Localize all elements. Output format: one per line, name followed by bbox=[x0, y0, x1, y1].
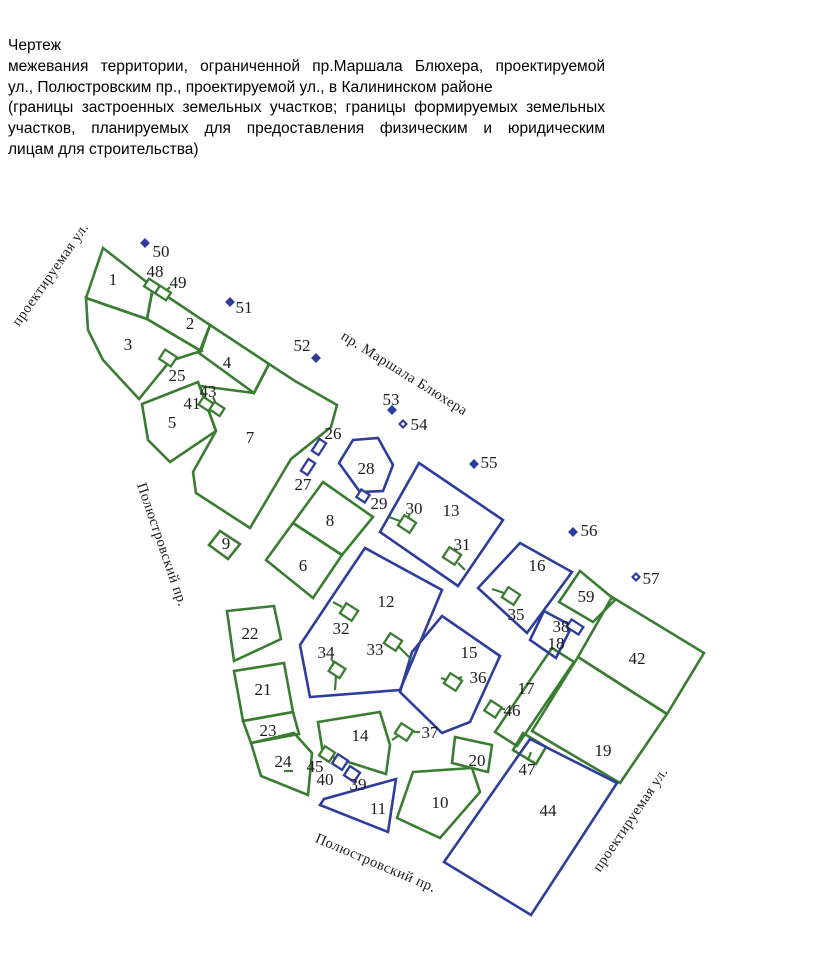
marker-43-label: 43 bbox=[200, 382, 217, 401]
parcel-44-label: 44 bbox=[540, 801, 558, 820]
marker-48-label: 48 bbox=[147, 262, 164, 281]
parcel-20-label: 20 bbox=[469, 751, 486, 770]
leader-line-4 bbox=[335, 676, 336, 690]
marker-25-label: 25 bbox=[169, 366, 186, 385]
parcel-47-label: 47 bbox=[519, 760, 537, 779]
parcel-9-label: 9 bbox=[222, 534, 231, 553]
marker-34-label: 34 bbox=[318, 643, 336, 662]
parcel-12-label: 12 bbox=[378, 592, 395, 611]
survey-point-52-label: 52 bbox=[294, 336, 311, 355]
leader-line-15 bbox=[528, 752, 531, 760]
survey-point-56 bbox=[568, 527, 578, 537]
parcel-10-label: 10 bbox=[432, 793, 449, 812]
survey-point-55 bbox=[469, 459, 479, 469]
parcel-1-label: 1 bbox=[109, 270, 118, 289]
marker-31-label: 31 bbox=[454, 535, 471, 554]
marker-27-label: 27 bbox=[295, 475, 313, 494]
marker-45-label: 45 bbox=[307, 757, 324, 776]
parcel-14-label: 14 bbox=[352, 726, 370, 745]
marker-33-label: 33 bbox=[367, 640, 384, 659]
parcel-21-label: 21 bbox=[255, 680, 272, 699]
street-label-2: Полюстровский пр. bbox=[133, 481, 190, 609]
leader-line-5 bbox=[492, 589, 504, 593]
parcel-13-label: 13 bbox=[443, 501, 460, 520]
marker-36 bbox=[444, 673, 462, 691]
marker-34 bbox=[329, 662, 346, 678]
marker-49-label: 49 bbox=[170, 273, 187, 292]
survey-point-57-label: 57 bbox=[643, 569, 661, 588]
parcel-18-label: 18 bbox=[548, 634, 565, 653]
marker-41-label: 41 bbox=[184, 394, 201, 413]
parcel-19-boundary bbox=[532, 657, 667, 783]
street-label-1: пр. Маршала Блюхера bbox=[338, 328, 470, 419]
survey-point-50 bbox=[140, 238, 150, 248]
marker-27 bbox=[301, 459, 315, 475]
marker-46-label: 46 bbox=[504, 701, 521, 720]
marker-35-label: 35 bbox=[508, 605, 525, 624]
marker-36-label: 36 bbox=[470, 668, 487, 687]
parcel-19-label: 19 bbox=[595, 741, 612, 760]
parcel-2-boundary bbox=[147, 287, 210, 351]
parcel-12-boundary bbox=[300, 548, 442, 697]
marker-32-label: 32 bbox=[333, 619, 350, 638]
parcel-24-label: 24 bbox=[275, 752, 293, 771]
survey-point-55-label: 55 bbox=[481, 453, 498, 472]
parcel-42-label: 42 bbox=[629, 649, 646, 668]
parcel-8-label: 8 bbox=[326, 511, 335, 530]
parcel-7-label: 7 bbox=[246, 428, 255, 447]
parcel-3-label: 3 bbox=[124, 335, 133, 354]
drawing-page: Чертеж межевания территории, ограниченно… bbox=[0, 0, 822, 974]
parcel-6-label: 6 bbox=[299, 556, 308, 575]
leader-line-3 bbox=[399, 647, 410, 658]
survey-point-52 bbox=[311, 353, 321, 363]
survey-point-53-label: 53 bbox=[383, 390, 400, 409]
marker-37 bbox=[395, 723, 413, 741]
survey-point-56-label: 56 bbox=[581, 521, 598, 540]
parcel-59-label: 59 bbox=[578, 587, 595, 606]
street-label-4: проектируемая ул. bbox=[590, 765, 672, 875]
marker-35 bbox=[502, 587, 520, 605]
parcel-2-label: 2 bbox=[186, 314, 195, 333]
parcel-4-label: 4 bbox=[223, 353, 232, 372]
parcel-28-label: 28 bbox=[358, 459, 375, 478]
parcel-16-label: 16 bbox=[529, 556, 546, 575]
marker-46 bbox=[484, 700, 501, 717]
leader-line-2 bbox=[333, 602, 342, 607]
leader-line-0 bbox=[389, 517, 400, 521]
leader-line-7 bbox=[392, 736, 398, 740]
parcel-11-label: 11 bbox=[370, 799, 386, 818]
street-label-3: Полюстровский пр. bbox=[313, 831, 439, 896]
survey-point-51-label: 51 bbox=[236, 298, 253, 317]
marker-37-label: 37 bbox=[422, 723, 440, 742]
leader-line-1 bbox=[458, 563, 465, 570]
marker-26-label: 26 bbox=[325, 424, 342, 443]
marker-29-label: 29 bbox=[371, 494, 388, 513]
marker-39-label: 39 bbox=[350, 775, 367, 794]
parcel-17-label: 17 bbox=[518, 679, 536, 698]
street-label-0: проектируемая ул. bbox=[9, 220, 92, 329]
marker-43 bbox=[210, 402, 225, 416]
marker-38-label: 38 bbox=[553, 617, 570, 636]
parcel-22-label: 22 bbox=[242, 624, 259, 643]
parcel-5-label: 5 bbox=[168, 413, 177, 432]
survey-point-50-label: 50 bbox=[153, 242, 170, 261]
marker-25 bbox=[159, 350, 177, 367]
land-survey-map: 1234579862221232414102017471942592813121… bbox=[0, 0, 822, 974]
parcel-15-label: 15 bbox=[461, 643, 478, 662]
marker-30-label: 30 bbox=[406, 499, 423, 518]
survey-point-54-label: 54 bbox=[411, 415, 429, 434]
survey-point-51 bbox=[225, 297, 235, 307]
